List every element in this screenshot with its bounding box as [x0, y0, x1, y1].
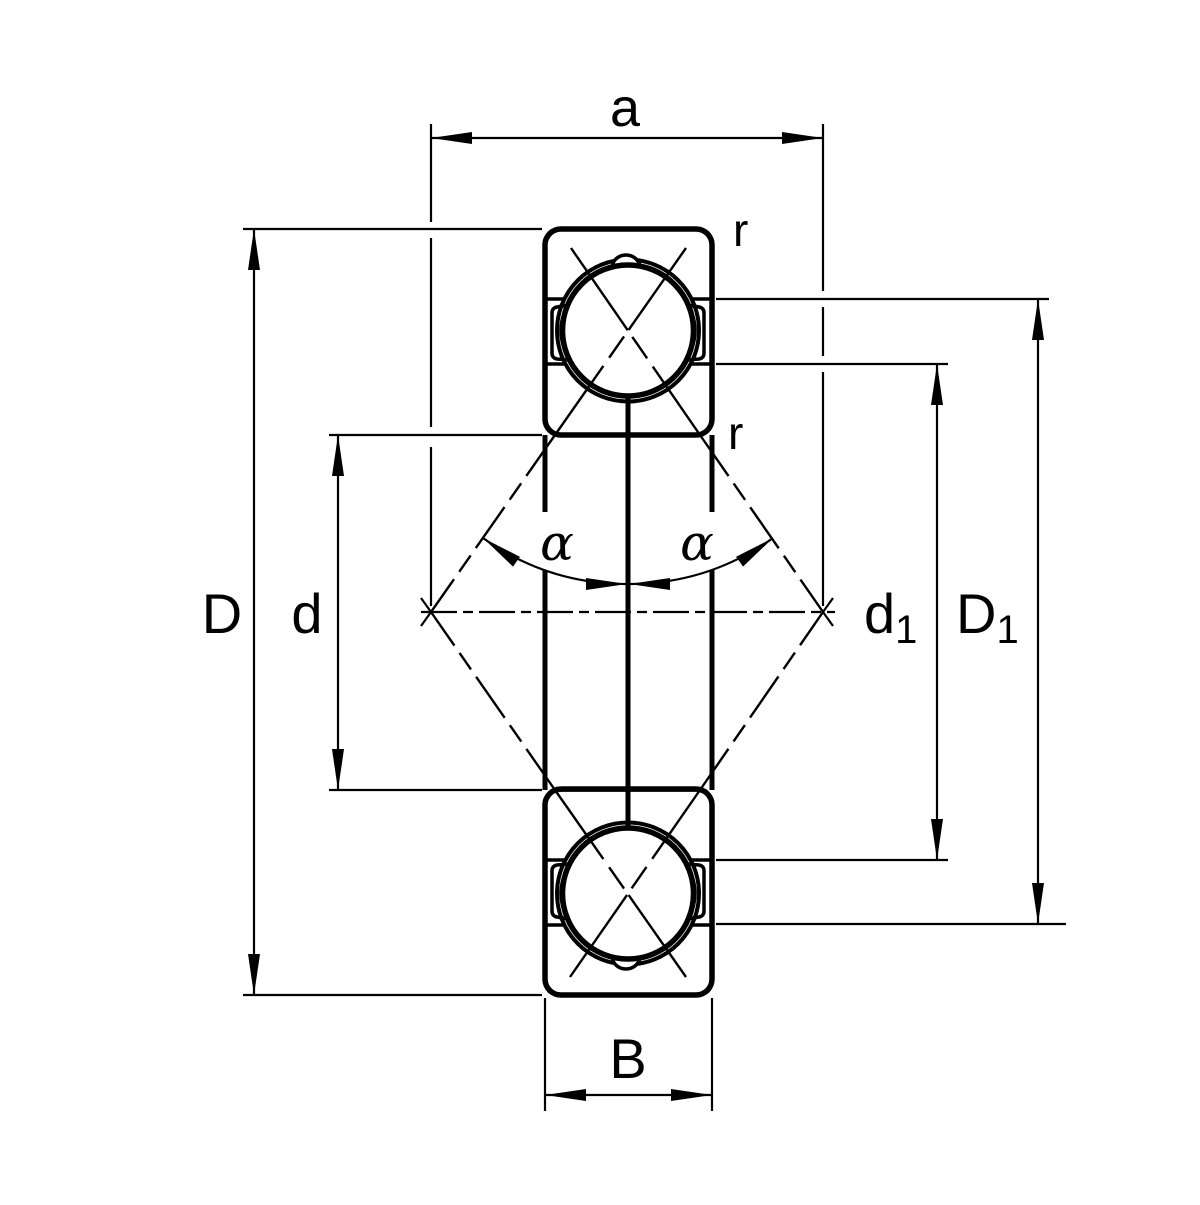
label-D1-subscript: 1 — [996, 608, 1018, 652]
bearing-cross-section-drawing: α α a D d d1 D1 B — [0, 0, 1200, 1200]
label-B: B — [609, 1027, 646, 1090]
bearing-drawing-page: α α a D d d1 D1 B — [0, 0, 1200, 1200]
label-alpha-left: α — [540, 514, 574, 572]
ball-top — [563, 265, 694, 396]
label-D: D — [202, 582, 242, 645]
label-d1-base: d — [864, 582, 895, 645]
ball-bottom — [563, 828, 694, 959]
label-d1-subscript: 1 — [895, 608, 917, 652]
label-alpha-right: α — [680, 514, 714, 572]
label-D1-base: D — [956, 582, 996, 645]
label-r-top: r — [733, 204, 748, 256]
label-r-mid: r — [728, 407, 743, 459]
label-d: d — [291, 582, 322, 645]
label-a: a — [610, 78, 641, 138]
canvas-background — [0, 0, 1200, 1200]
